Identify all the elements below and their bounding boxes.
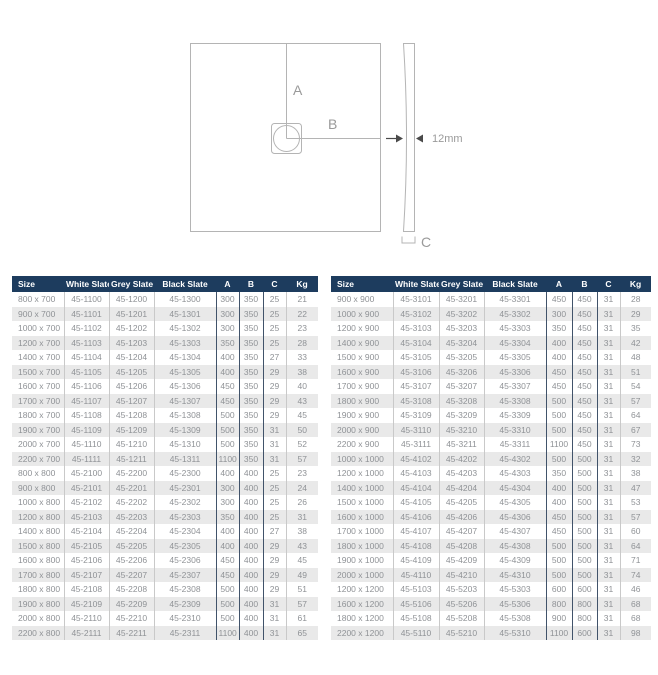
cell: 45-1102 <box>64 321 109 336</box>
cell: 45-1110 <box>64 437 109 452</box>
cell: 450 <box>546 510 572 525</box>
table-row: 1400 x 70045-110445-120445-1304400350273… <box>12 350 318 365</box>
cell: 1100 <box>546 626 572 641</box>
cell: 1600 x 700 <box>12 379 64 394</box>
tray-diagram: A B 12mm C <box>0 0 658 265</box>
cell: 2200 x 900 <box>331 437 393 452</box>
cell: 45-2203 <box>109 510 154 525</box>
cell: 500 <box>546 408 572 423</box>
cell: 450 <box>572 394 597 409</box>
cell: 45-5303 <box>484 582 546 597</box>
cell: 45-4109 <box>393 553 439 568</box>
table-row: 1800 x 70045-110845-120845-1308500350294… <box>12 408 318 423</box>
cell: 1500 x 700 <box>12 365 64 380</box>
table-row: 2000 x 80045-211045-221045-2310500400316… <box>12 611 318 626</box>
column-header: Grey Slate <box>109 276 154 292</box>
cell: 27 <box>263 524 286 539</box>
cell: 1900 x 800 <box>12 597 64 612</box>
cell: 1900 x 700 <box>12 423 64 438</box>
cell: 45-2302 <box>154 495 216 510</box>
cell: 45-3108 <box>393 394 439 409</box>
cell: 45-5106 <box>393 597 439 612</box>
cell: 31 <box>597 292 620 307</box>
cell: 45-3310 <box>484 423 546 438</box>
cell: 52 <box>286 437 318 452</box>
spec-table-700-800: SizeWhite SlateGrey SlateBlack SlateABCK… <box>12 276 318 640</box>
cell: 400 <box>239 553 263 568</box>
cell: 400 <box>239 597 263 612</box>
cell: 31 <box>597 307 620 322</box>
cell: 350 <box>216 336 239 351</box>
cell: 400 <box>239 568 263 583</box>
cell: 45-3308 <box>484 394 546 409</box>
cell: 400 <box>546 481 572 496</box>
cell: 31 <box>597 394 620 409</box>
cell: 500 <box>546 452 572 467</box>
cell: 42 <box>620 336 651 351</box>
table-row: 1400 x 90045-310445-320445-3304400450314… <box>331 336 651 351</box>
table-row: 1000 x 80045-210245-220245-2302300400252… <box>12 495 318 510</box>
cell: 24 <box>286 481 318 496</box>
cell: 300 <box>216 481 239 496</box>
cell: 45-4310 <box>484 568 546 583</box>
cell: 45-2207 <box>109 568 154 583</box>
cell: 2000 x 900 <box>331 423 393 438</box>
cell: 45-4308 <box>484 539 546 554</box>
cell: 400 <box>216 466 239 481</box>
cell: 45-1201 <box>109 307 154 322</box>
cell: 45-1205 <box>109 365 154 380</box>
cell: 2000 x 700 <box>12 437 64 452</box>
table-row: 2000 x 70045-111045-121045-1310500350315… <box>12 437 318 452</box>
cell: 31 <box>286 510 318 525</box>
cell: 45-1301 <box>154 307 216 322</box>
table-row: 900 x 80045-210145-220145-23013004002524 <box>12 481 318 496</box>
table-row: 1000 x 100045-410245-420245-430250050031… <box>331 452 651 467</box>
cell: 45-2307 <box>154 568 216 583</box>
cell: 800 x 700 <box>12 292 64 307</box>
cell: 900 x 800 <box>12 481 64 496</box>
cell: 45-1210 <box>109 437 154 452</box>
cell: 400 <box>546 336 572 351</box>
cell: 33 <box>286 350 318 365</box>
cell: 45-2200 <box>109 466 154 481</box>
cell: 900 x 900 <box>331 292 393 307</box>
cell: 45-4306 <box>484 510 546 525</box>
table-row: 900 x 90045-310145-320145-33014504503128 <box>331 292 651 307</box>
cell: 45-3305 <box>484 350 546 365</box>
cell: 400 <box>239 611 263 626</box>
cell: 45-2106 <box>64 553 109 568</box>
cell: 1100 <box>216 626 239 641</box>
label-a: A <box>293 82 303 98</box>
cell: 45-3306 <box>484 365 546 380</box>
cell: 350 <box>239 452 263 467</box>
cell: 32 <box>620 452 651 467</box>
depth-bracket <box>402 237 415 244</box>
cell: 45-3202 <box>439 307 484 322</box>
cell: 38 <box>620 466 651 481</box>
column-header: C <box>597 276 620 292</box>
cell: 600 <box>572 582 597 597</box>
cell: 45-2108 <box>64 582 109 597</box>
table-row: 1800 x 90045-310845-320845-3308500450315… <box>331 394 651 409</box>
cell: 45-1303 <box>154 336 216 351</box>
cell: 450 <box>546 292 572 307</box>
cell: 1700 x 1000 <box>331 524 393 539</box>
column-header: Black Slate <box>484 276 546 292</box>
cell: 45-1204 <box>109 350 154 365</box>
table-row: 1700 x 70045-110745-120745-1307450350294… <box>12 394 318 409</box>
cell: 400 <box>239 466 263 481</box>
cell: 450 <box>572 365 597 380</box>
cell: 29 <box>263 394 286 409</box>
cell: 450 <box>572 336 597 351</box>
cell: 45-3205 <box>439 350 484 365</box>
cell: 1800 x 800 <box>12 582 64 597</box>
cell: 29 <box>263 365 286 380</box>
cell: 45-5310 <box>484 626 546 641</box>
cell: 500 <box>546 394 572 409</box>
table-row: 2200 x 80045-211145-221145-2311110040031… <box>12 626 318 641</box>
cell: 350 <box>546 321 572 336</box>
cell: 45-1305 <box>154 365 216 380</box>
cell: 45-2209 <box>109 597 154 612</box>
cell: 45-4106 <box>393 510 439 525</box>
cell: 1700 x 700 <box>12 394 64 409</box>
table-row: 2000 x 90045-311045-321045-3310500450316… <box>331 423 651 438</box>
cell: 1900 x 900 <box>331 408 393 423</box>
cell: 45-4307 <box>484 524 546 539</box>
cell: 45-3302 <box>484 307 546 322</box>
cell: 45-2306 <box>154 553 216 568</box>
cell: 350 <box>239 336 263 351</box>
cell: 25 <box>263 510 286 525</box>
cell: 450 <box>572 423 597 438</box>
cell: 45-3110 <box>393 423 439 438</box>
cell: 68 <box>620 597 651 612</box>
cell: 51 <box>620 365 651 380</box>
cell: 45-3210 <box>439 423 484 438</box>
cell: 31 <box>597 510 620 525</box>
cell: 1100 <box>546 437 572 452</box>
cell: 31 <box>597 365 620 380</box>
cell: 450 <box>546 524 572 539</box>
table-row: 1200 x 70045-110345-120345-1303350350252… <box>12 336 318 351</box>
table-row: 1500 x 80045-210545-220545-2305400400294… <box>12 539 318 554</box>
cell: 45-3201 <box>439 292 484 307</box>
cell: 29 <box>263 553 286 568</box>
cell: 1900 x 1000 <box>331 553 393 568</box>
cell: 45-3107 <box>393 379 439 394</box>
cell: 45-1309 <box>154 423 216 438</box>
cell: 45-1101 <box>64 307 109 322</box>
cell: 45-1111 <box>64 452 109 467</box>
column-header: Kg <box>286 276 318 292</box>
cell: 29 <box>263 379 286 394</box>
cell: 43 <box>286 539 318 554</box>
cell: 1800 x 1200 <box>331 611 393 626</box>
cell: 450 <box>572 292 597 307</box>
cell: 400 <box>239 626 263 641</box>
cell: 1000 x 700 <box>12 321 64 336</box>
cell: 1000 x 900 <box>331 307 393 322</box>
cell: 45-4205 <box>439 495 484 510</box>
cell: 500 <box>572 495 597 510</box>
table-row: 1700 x 100045-410745-420745-430745050031… <box>331 524 651 539</box>
cell: 31 <box>263 452 286 467</box>
cell: 43 <box>286 394 318 409</box>
cell: 45-3101 <box>393 292 439 307</box>
cell: 800 <box>572 611 597 626</box>
cell: 45-2301 <box>154 481 216 496</box>
cell: 60 <box>620 524 651 539</box>
cell: 61 <box>286 611 318 626</box>
table-row: 1800 x 80045-210845-220845-2308500400295… <box>12 582 318 597</box>
cell: 45-4108 <box>393 539 439 554</box>
cell: 45-2104 <box>64 524 109 539</box>
cell: 45-3102 <box>393 307 439 322</box>
cell: 45-3104 <box>393 336 439 351</box>
cell: 450 <box>572 379 597 394</box>
cell: 54 <box>620 379 651 394</box>
cell: 31 <box>597 423 620 438</box>
cell: 45-2103 <box>64 510 109 525</box>
cell: 25 <box>263 307 286 322</box>
cell: 45-4305 <box>484 495 546 510</box>
column-header: Size <box>331 276 393 292</box>
table-row: 1900 x 100045-410945-420945-430950050031… <box>331 553 651 568</box>
cell: 45-1100 <box>64 292 109 307</box>
table-row: 1200 x 100045-410345-420345-430335050031… <box>331 466 651 481</box>
cell: 500 <box>216 423 239 438</box>
cell: 500 <box>572 524 597 539</box>
cell: 45-4207 <box>439 524 484 539</box>
cell: 45-1306 <box>154 379 216 394</box>
cell: 350 <box>239 423 263 438</box>
cell: 1200 x 700 <box>12 336 64 351</box>
cell: 38 <box>286 365 318 380</box>
cell: 1600 x 1000 <box>331 510 393 525</box>
cell: 1200 x 1200 <box>331 582 393 597</box>
cell: 45-2110 <box>64 611 109 626</box>
cell: 45-1211 <box>109 452 154 467</box>
cell: 45-1109 <box>64 423 109 438</box>
cell: 1400 x 1000 <box>331 481 393 496</box>
cell: 50 <box>286 423 318 438</box>
column-header: Black Slate <box>154 276 216 292</box>
cell: 31 <box>597 336 620 351</box>
cell: 53 <box>620 495 651 510</box>
cell: 2200 x 700 <box>12 452 64 467</box>
cell: 800 x 800 <box>12 466 64 481</box>
cell: 2000 x 800 <box>12 611 64 626</box>
cell: 45-2308 <box>154 582 216 597</box>
cell: 45-4105 <box>393 495 439 510</box>
cell: 25 <box>263 292 286 307</box>
cell: 31 <box>597 495 620 510</box>
cell: 65 <box>286 626 318 641</box>
tray-outline <box>191 44 381 232</box>
cell: 1800 x 700 <box>12 408 64 423</box>
table-row: 1400 x 80045-210445-220445-2304400400273… <box>12 524 318 539</box>
cell: 22 <box>286 307 318 322</box>
cell: 45-1311 <box>154 452 216 467</box>
label-b: B <box>328 116 337 132</box>
cell: 1000 x 800 <box>12 495 64 510</box>
cell: 45-2205 <box>109 539 154 554</box>
column-header: White Slate <box>64 276 109 292</box>
cell: 45-3207 <box>439 379 484 394</box>
cell: 500 <box>572 452 597 467</box>
cell: 45-2202 <box>109 495 154 510</box>
cell: 350 <box>239 408 263 423</box>
cell: 45-1308 <box>154 408 216 423</box>
cell: 500 <box>216 597 239 612</box>
cell: 49 <box>286 568 318 583</box>
cell: 45-1202 <box>109 321 154 336</box>
cell: 45-4210 <box>439 568 484 583</box>
cell: 45-4209 <box>439 553 484 568</box>
cell: 31 <box>597 466 620 481</box>
cell: 400 <box>239 510 263 525</box>
cell: 45-4204 <box>439 481 484 496</box>
cell: 31 <box>597 350 620 365</box>
cell: 1500 x 800 <box>12 539 64 554</box>
cell: 45-2309 <box>154 597 216 612</box>
cell: 45-1106 <box>64 379 109 394</box>
cell: 31 <box>263 437 286 452</box>
table-row: 1900 x 90045-310945-320945-3309500450316… <box>331 408 651 423</box>
cell: 450 <box>572 437 597 452</box>
cell: 450 <box>546 365 572 380</box>
cell: 57 <box>620 394 651 409</box>
cell: 450 <box>546 379 572 394</box>
cell: 45-4110 <box>393 568 439 583</box>
column-header: Kg <box>620 276 651 292</box>
table-row: 1500 x 90045-310545-320545-3305400450314… <box>331 350 651 365</box>
cell: 25 <box>263 481 286 496</box>
cell: 45-3307 <box>484 379 546 394</box>
cell: 400 <box>216 524 239 539</box>
cell: 1200 x 900 <box>331 321 393 336</box>
column-header: Grey Slate <box>439 276 484 292</box>
cell: 45-1209 <box>109 423 154 438</box>
cell: 500 <box>546 539 572 554</box>
cell: 400 <box>216 539 239 554</box>
cell: 31 <box>597 553 620 568</box>
thickness-label: 12mm <box>432 133 463 145</box>
cell: 1600 x 1200 <box>331 597 393 612</box>
cell: 64 <box>620 408 651 423</box>
cell: 600 <box>546 582 572 597</box>
cell: 400 <box>546 495 572 510</box>
cell: 45-1304 <box>154 350 216 365</box>
cell: 31 <box>597 321 620 336</box>
cell: 45-2109 <box>64 597 109 612</box>
cell: 350 <box>239 437 263 452</box>
table-row: 1600 x 70045-110645-120645-1306450350294… <box>12 379 318 394</box>
cell: 300 <box>216 495 239 510</box>
cell: 400 <box>239 481 263 496</box>
cell: 28 <box>620 292 651 307</box>
cell: 29 <box>263 568 286 583</box>
cell: 45-3311 <box>484 437 546 452</box>
cell: 29 <box>620 307 651 322</box>
cell: 45-1208 <box>109 408 154 423</box>
column-header: A <box>546 276 572 292</box>
cell: 47 <box>620 481 651 496</box>
cell: 45-2206 <box>109 553 154 568</box>
table-row: 1900 x 70045-110945-120945-1309500350315… <box>12 423 318 438</box>
cell: 500 <box>546 423 572 438</box>
cell: 45-2201 <box>109 481 154 496</box>
cell: 45-1103 <box>64 336 109 351</box>
cell: 38 <box>286 524 318 539</box>
cell: 57 <box>286 597 318 612</box>
cell: 45-5110 <box>393 626 439 641</box>
cell: 45-2101 <box>64 481 109 496</box>
cell: 2200 x 1200 <box>331 626 393 641</box>
cell: 450 <box>572 307 597 322</box>
cell: 400 <box>239 582 263 597</box>
cell: 350 <box>239 307 263 322</box>
cell: 350 <box>239 365 263 380</box>
cell: 31 <box>597 379 620 394</box>
cell: 45-1310 <box>154 437 216 452</box>
cell: 45-5306 <box>484 597 546 612</box>
table-row: 1500 x 100045-410545-420545-430540050031… <box>331 495 651 510</box>
cell: 23 <box>286 321 318 336</box>
cell: 23 <box>286 466 318 481</box>
cell: 45-4208 <box>439 539 484 554</box>
cell: 45-2105 <box>64 539 109 554</box>
label-c: C <box>421 234 431 250</box>
cell: 45-4102 <box>393 452 439 467</box>
cell: 25 <box>263 336 286 351</box>
table-row: 1000 x 70045-110245-120245-1302300350252… <box>12 321 318 336</box>
table-row: 2200 x 90045-311145-321145-3311110045031… <box>331 437 651 452</box>
cell: 45-2310 <box>154 611 216 626</box>
cell: 45-1203 <box>109 336 154 351</box>
cell: 350 <box>239 350 263 365</box>
cell: 500 <box>546 568 572 583</box>
cell: 350 <box>216 510 239 525</box>
cell: 400 <box>216 365 239 380</box>
cell: 45-3209 <box>439 408 484 423</box>
cell: 400 <box>546 350 572 365</box>
cell: 2000 x 1000 <box>331 568 393 583</box>
table-row: 1000 x 90045-310245-320245-3302300450312… <box>331 307 651 322</box>
cell: 45-4309 <box>484 553 546 568</box>
cell: 35 <box>620 321 651 336</box>
cell: 45-1107 <box>64 394 109 409</box>
column-header: B <box>572 276 597 292</box>
cell: 45-5206 <box>439 597 484 612</box>
column-header: B <box>239 276 263 292</box>
cell: 45-3204 <box>439 336 484 351</box>
cell: 500 <box>572 466 597 481</box>
cell: 98 <box>620 626 651 641</box>
cell: 31 <box>597 408 620 423</box>
cell: 57 <box>620 510 651 525</box>
cell: 45-4103 <box>393 466 439 481</box>
cell: 500 <box>572 553 597 568</box>
cell: 500 <box>572 568 597 583</box>
thickness-arrow-right-icon <box>416 135 423 143</box>
cell: 450 <box>572 321 597 336</box>
cell: 45-1300 <box>154 292 216 307</box>
